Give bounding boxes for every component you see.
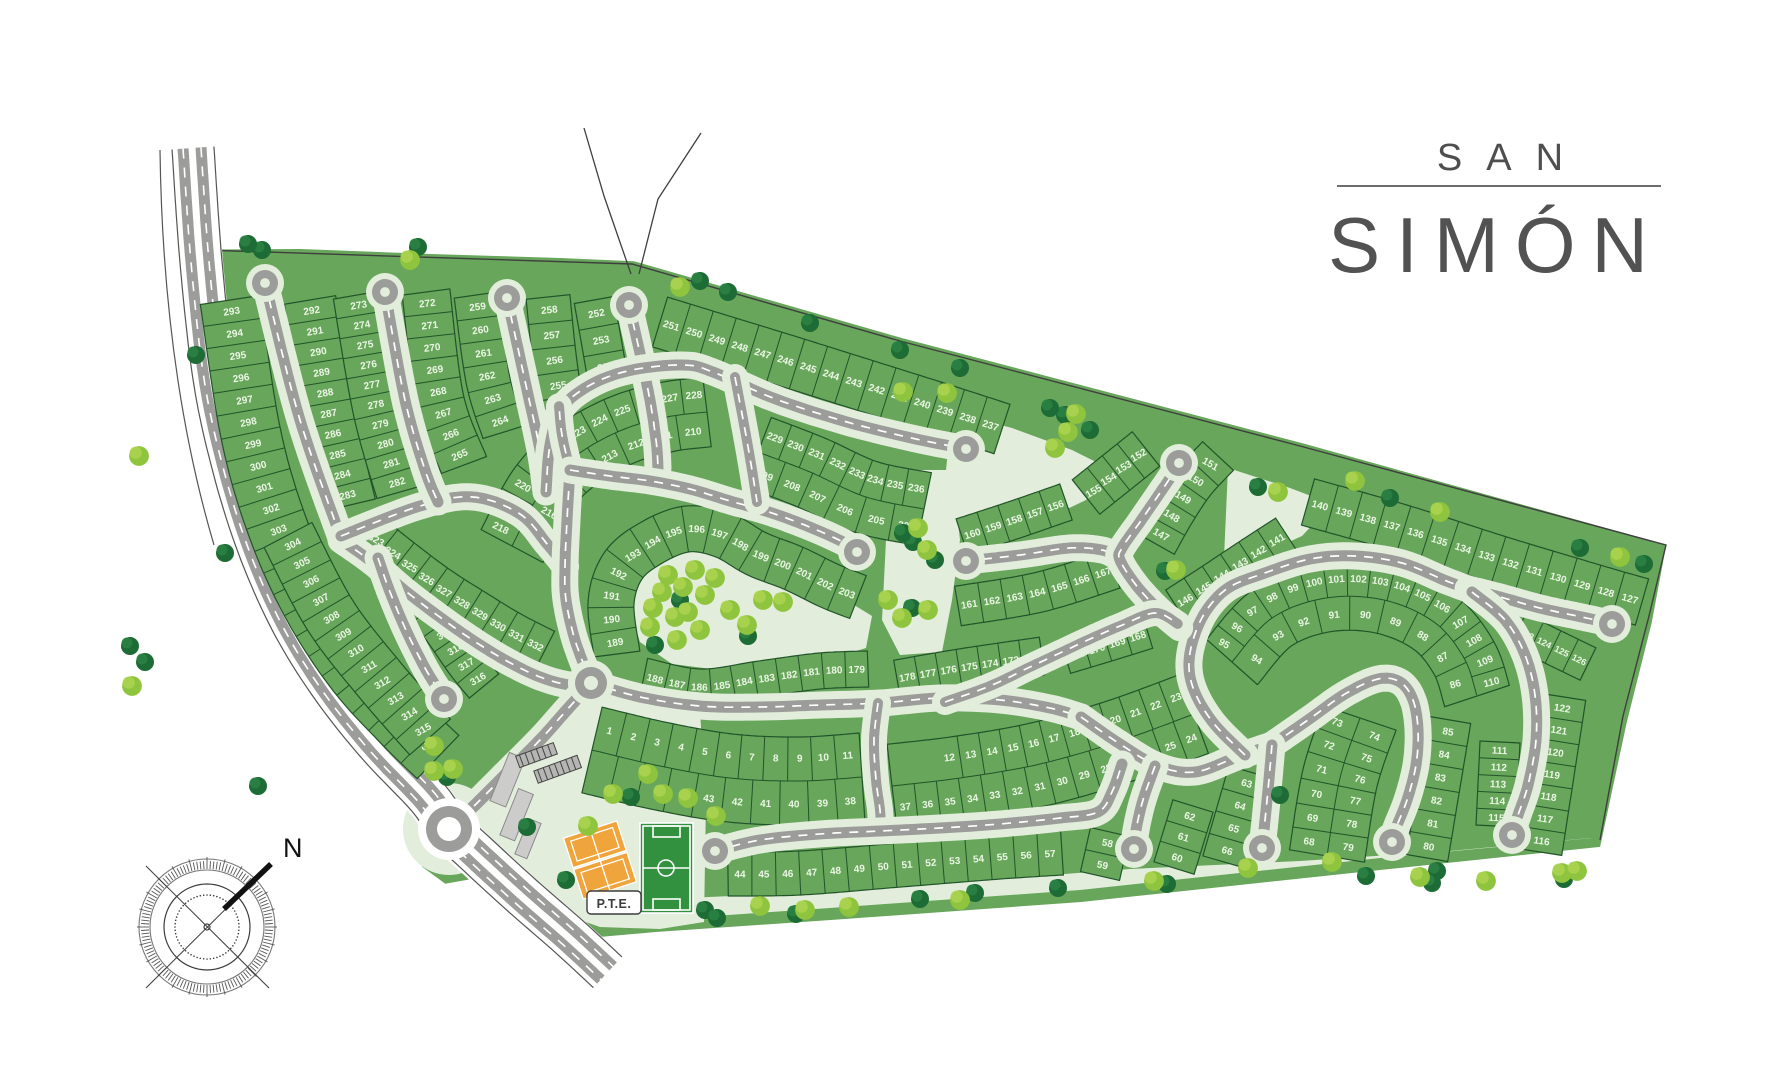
- svg-text:53: 53: [949, 856, 961, 868]
- svg-text:91: 91: [1328, 610, 1341, 622]
- svg-text:55: 55: [996, 852, 1008, 864]
- svg-text:256: 256: [546, 355, 564, 368]
- svg-text:37: 37: [899, 801, 912, 813]
- svg-text:68: 68: [1303, 836, 1316, 849]
- svg-text:SAN: SAN: [1437, 137, 1587, 179]
- svg-text:10: 10: [818, 752, 830, 764]
- svg-text:8: 8: [773, 753, 779, 764]
- svg-text:196: 196: [688, 524, 706, 536]
- svg-text:79: 79: [1342, 842, 1355, 855]
- svg-text:102: 102: [1350, 574, 1368, 586]
- svg-text:259: 259: [469, 301, 487, 314]
- svg-text:112: 112: [1490, 762, 1507, 774]
- svg-text:257: 257: [543, 330, 561, 343]
- svg-text:85: 85: [1442, 726, 1455, 739]
- svg-text:48: 48: [830, 866, 842, 878]
- svg-text:49: 49: [853, 863, 865, 875]
- svg-text:SIMÓN: SIMÓN: [1328, 201, 1664, 289]
- svg-text:9: 9: [797, 754, 803, 765]
- svg-text:45: 45: [758, 869, 770, 880]
- svg-text:36: 36: [922, 799, 935, 811]
- svg-text:190: 190: [603, 614, 621, 627]
- svg-text:46: 46: [782, 869, 794, 880]
- svg-text:258: 258: [541, 304, 559, 317]
- svg-text:12: 12: [943, 752, 956, 764]
- svg-text:181: 181: [803, 666, 821, 679]
- svg-text:83: 83: [1434, 772, 1447, 785]
- svg-text:52: 52: [925, 858, 937, 870]
- svg-text:43: 43: [702, 793, 715, 806]
- svg-text:179: 179: [848, 665, 865, 676]
- svg-text:41: 41: [760, 799, 772, 810]
- svg-text:42: 42: [731, 797, 743, 809]
- svg-text:180: 180: [826, 665, 844, 677]
- svg-text:P.T.E.: P.T.E.: [597, 897, 632, 911]
- svg-text:44: 44: [734, 869, 746, 880]
- svg-text:111: 111: [1492, 746, 1509, 758]
- svg-text:210: 210: [684, 426, 702, 439]
- svg-text:35: 35: [944, 796, 957, 808]
- svg-text:84: 84: [1438, 749, 1451, 762]
- svg-text:272: 272: [419, 298, 437, 311]
- svg-text:101: 101: [1328, 574, 1346, 586]
- svg-text:78: 78: [1345, 819, 1358, 832]
- svg-text:54: 54: [973, 854, 985, 866]
- svg-text:90: 90: [1359, 610, 1372, 622]
- svg-text:56: 56: [1020, 850, 1032, 862]
- svg-text:34: 34: [966, 793, 979, 806]
- svg-text:271: 271: [421, 320, 439, 333]
- svg-text:14: 14: [986, 746, 999, 759]
- svg-text:50: 50: [877, 861, 889, 873]
- svg-text:82: 82: [1430, 795, 1443, 808]
- svg-text:N: N: [283, 833, 303, 863]
- svg-text:183: 183: [758, 672, 776, 685]
- svg-text:80: 80: [1422, 841, 1435, 854]
- svg-text:269: 269: [426, 364, 444, 377]
- svg-text:270: 270: [423, 342, 441, 355]
- svg-text:113: 113: [1490, 779, 1507, 791]
- svg-text:57: 57: [1044, 849, 1056, 861]
- svg-text:39: 39: [817, 798, 829, 810]
- svg-text:40: 40: [788, 799, 800, 810]
- svg-text:260: 260: [472, 324, 490, 337]
- svg-text:81: 81: [1426, 818, 1439, 831]
- svg-text:228: 228: [685, 390, 703, 403]
- svg-text:69: 69: [1306, 813, 1319, 826]
- svg-text:38: 38: [844, 796, 856, 808]
- svg-text:13: 13: [965, 749, 978, 762]
- svg-text:47: 47: [806, 867, 818, 879]
- svg-text:33: 33: [989, 789, 1002, 802]
- svg-text:294: 294: [226, 328, 244, 341]
- svg-text:51: 51: [901, 859, 913, 871]
- svg-text:11: 11: [842, 750, 854, 762]
- svg-text:114: 114: [1489, 796, 1506, 808]
